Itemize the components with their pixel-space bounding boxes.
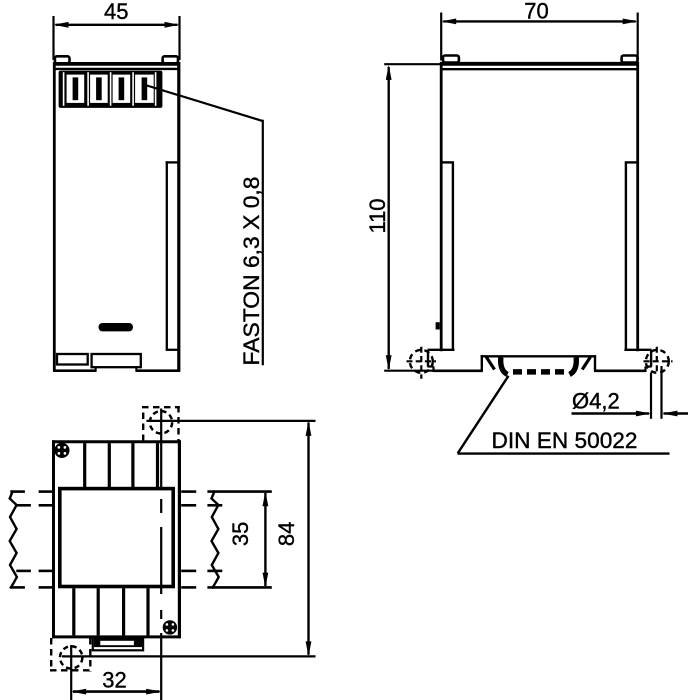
svg-text:DIN EN 50022: DIN EN 50022 <box>492 428 638 453</box>
svg-text:110: 110 <box>365 198 390 233</box>
svg-text:35: 35 <box>228 522 253 546</box>
svg-text:45: 45 <box>104 0 128 24</box>
svg-text:84: 84 <box>274 522 299 546</box>
svg-text:70: 70 <box>524 0 548 24</box>
svg-text:Ø4,2: Ø4,2 <box>572 388 620 413</box>
svg-text:32: 32 <box>102 668 126 693</box>
svg-text:FASTON 6,3 X 0,8: FASTON 6,3 X 0,8 <box>239 177 264 366</box>
